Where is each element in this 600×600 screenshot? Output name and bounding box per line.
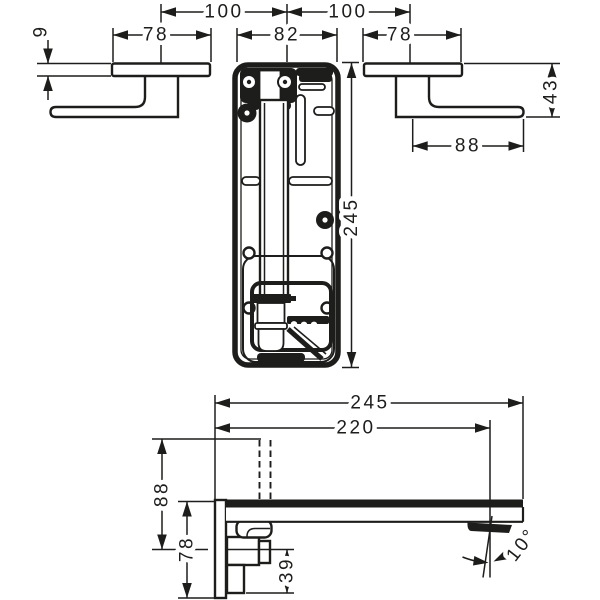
dim-outlet-drop: 39: [277, 557, 298, 583]
dim-riser-height: 88: [152, 481, 173, 507]
concealed-body: [235, 65, 338, 365]
dim-span-left: 100: [204, 2, 243, 23]
drain-tube: [258, 303, 285, 323]
shelf-scallop-3: [311, 322, 318, 329]
spout-mounting-assembly: [227, 520, 272, 593]
screw-top-left-dot: [244, 110, 249, 115]
manifold-right-slot: [299, 84, 325, 90]
dim-plate-thickness: 9: [31, 24, 52, 37]
slot-vertical: [296, 95, 305, 165]
hidden-supply-pipe: [260, 440, 271, 499]
dim-span-right: 100: [328, 2, 367, 23]
manifold-center-port: [260, 71, 281, 102]
technical-drawing-page: 100 100 78 82 78 9 43 88 245: [0, 0, 600, 600]
right-handle-lever: [396, 76, 524, 118]
boss-screw-1: [244, 248, 255, 259]
dim-handle-plate-right: 78: [387, 25, 413, 46]
boss-screw-2: [322, 248, 333, 259]
flange-step: [289, 296, 296, 301]
shelf-scallop-1: [291, 321, 298, 328]
left-handle-top-view: [51, 64, 211, 118]
top-view: 100 100 78 82 78 9 43 88 245: [31, 2, 562, 368]
spout-top-surface: [226, 500, 523, 508]
lower-tab: [227, 565, 244, 593]
slot-mid-right: [289, 177, 332, 185]
side-view: 245 220 88 78 39 10°: [152, 393, 542, 599]
dim-body-height: 245: [341, 197, 362, 236]
screw-mid-right-dot: [322, 217, 327, 222]
dim-escutcheon-height: 78: [177, 536, 198, 562]
left-handle-plate: [112, 64, 210, 77]
dim-handle-height: 43: [541, 78, 562, 104]
escutcheon-plate: [215, 500, 226, 598]
dim-spout-reach: 220: [336, 418, 375, 439]
dim-handle-plate-left: 78: [143, 25, 169, 46]
faucet-dimension-drawing: 100 100 78 82 78 9 43 88 245: [0, 0, 600, 600]
bottom-drain-bar: [257, 353, 305, 362]
dim-total-depth: 245: [350, 393, 389, 414]
channel-flange: [253, 294, 291, 303]
manifold-right-bar: [299, 74, 332, 82]
supply-port-right-pin: [283, 80, 287, 84]
slot-mid-left: [242, 177, 260, 185]
left-handle-lever: [51, 76, 179, 118]
valve-block: [227, 537, 259, 565]
dim-body-width: 82: [274, 25, 300, 46]
shelf-scallop-2: [301, 322, 308, 329]
dim-handle-reach: 88: [455, 136, 481, 157]
right-handle-top-view: [364, 64, 524, 118]
supply-port-left-pin: [247, 80, 251, 84]
drain-cup: [259, 329, 284, 351]
slot-right-small: [314, 107, 334, 115]
right-handle-plate: [364, 64, 462, 77]
valve-cap: [259, 541, 270, 563]
